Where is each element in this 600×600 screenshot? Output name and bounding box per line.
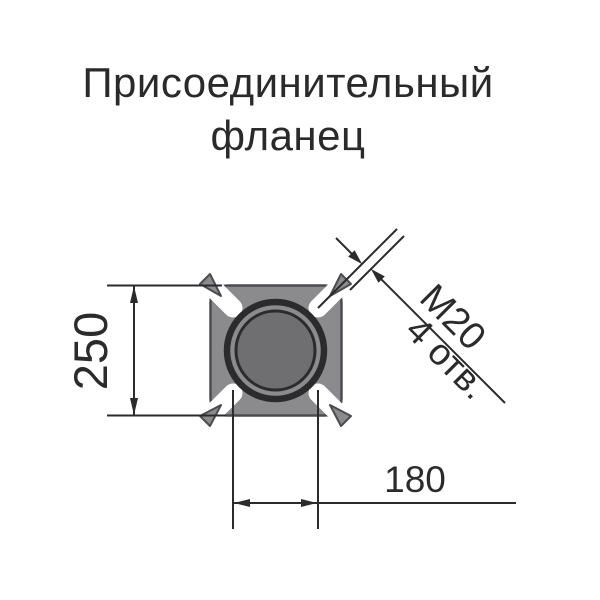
page: Присоединительный фланец 250 xyxy=(0,0,600,600)
bore-inner-circle xyxy=(236,311,315,390)
arrowhead-right xyxy=(301,499,317,507)
arrowhead-down xyxy=(130,398,138,415)
hole-leader-line-offset xyxy=(350,236,404,290)
dimension-height: 250 xyxy=(64,286,226,416)
dimension-width-label: 180 xyxy=(384,459,446,500)
arrowhead-up xyxy=(130,286,138,303)
dimension-height-label: 250 xyxy=(64,312,117,390)
flange-drawing: 250 180 M20 4 отв. xyxy=(0,0,600,600)
arrowhead-left xyxy=(234,499,250,507)
hole-leader-line xyxy=(318,229,397,308)
dimension-hole-callout: M20 4 отв. xyxy=(318,229,505,407)
